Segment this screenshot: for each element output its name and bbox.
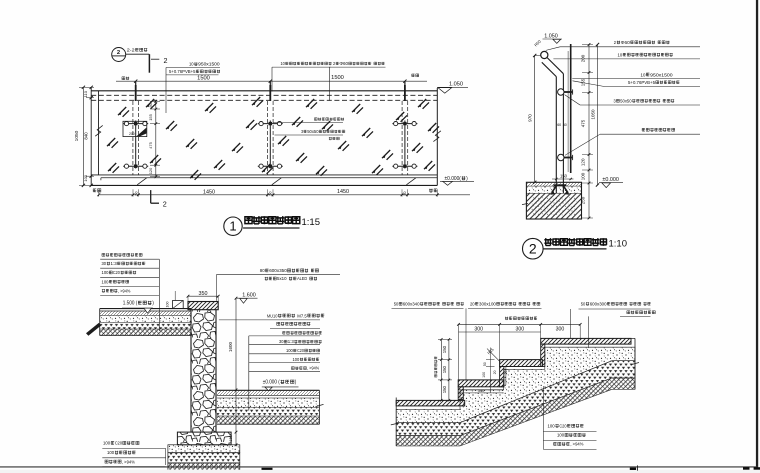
svg-text:1.050: 1.050: [449, 81, 463, 87]
svg-text:600x300: 600x300: [590, 301, 607, 306]
svg-text:2-2: 2-2: [127, 47, 135, 53]
svg-text:30: 30: [102, 261, 107, 266]
svg-text:200: 200: [129, 132, 135, 136]
svg-text:C20: C20: [113, 270, 120, 275]
svg-text:100: 100: [166, 302, 170, 308]
svg-text:100: 100: [581, 172, 586, 180]
svg-text:1:10: 1:10: [609, 239, 628, 250]
svg-text:5x10: 5x10: [277, 276, 287, 281]
svg-text:, >94%: , >94%: [570, 442, 584, 448]
svg-text:600x340: 600x340: [403, 301, 420, 306]
svg-text:50: 50: [403, 192, 407, 196]
svg-text:50: 50: [394, 301, 399, 306]
svg-text:200: 200: [581, 54, 586, 62]
svg-text:80: 80: [260, 268, 265, 274]
svg-text:, >94%: , >94%: [307, 366, 319, 371]
svg-text:100: 100: [83, 174, 88, 181]
svg-text:50: 50: [269, 192, 273, 196]
svg-text:120: 120: [581, 158, 586, 166]
svg-text:300: 300: [474, 327, 483, 333]
svg-text:150: 150: [442, 366, 447, 374]
svg-text:2: 2: [163, 200, 167, 209]
svg-text:1:3: 1:3: [288, 339, 294, 344]
svg-text:970: 970: [528, 114, 533, 122]
svg-text:50: 50: [581, 301, 586, 306]
svg-text:±0.000 (: ±0.000 (: [263, 380, 280, 386]
svg-text:475: 475: [148, 142, 153, 149]
svg-text:475: 475: [581, 119, 586, 127]
svg-text:20: 20: [470, 301, 475, 306]
svg-text:1.600: 1.600: [242, 292, 256, 298]
svg-text:10: 10: [189, 62, 194, 67]
svg-text:100: 100: [557, 433, 564, 439]
svg-text:): ): [152, 301, 154, 307]
svg-text:C20: C20: [559, 423, 566, 429]
svg-text:1.500 (: 1.500 (: [123, 301, 138, 307]
svg-text:120: 120: [148, 167, 153, 174]
svg-text:50x50: 50x50: [307, 129, 319, 134]
svg-text:±0.000: ±0.000: [602, 177, 618, 183]
svg-text:2: 2: [529, 241, 537, 257]
svg-text:10: 10: [281, 61, 286, 66]
svg-text:100: 100: [293, 357, 300, 362]
svg-text:): ): [466, 176, 468, 182]
svg-text:±0.000(: ±0.000(: [445, 176, 462, 182]
svg-text:C20: C20: [297, 348, 304, 353]
svg-text:600x350: 600x350: [269, 268, 287, 274]
svg-text:1600: 1600: [228, 341, 233, 352]
svg-text:30: 30: [279, 339, 284, 344]
svg-text:100: 100: [102, 270, 109, 275]
svg-text:): ): [295, 380, 297, 386]
svg-text:150: 150: [442, 386, 447, 394]
svg-text:Φ60: Φ60: [621, 40, 631, 45]
svg-text:50: 50: [483, 362, 487, 366]
svg-text:50: 50: [135, 192, 139, 196]
svg-text:5+0.76PVB+5: 5+0.76PVB+5: [628, 80, 655, 85]
svg-text:100: 100: [482, 372, 486, 378]
svg-text:2: 2: [614, 40, 617, 45]
svg-text:340: 340: [478, 388, 485, 393]
svg-text:5+0.76PVB+5: 5+0.76PVB+5: [169, 69, 196, 74]
svg-text:1: 1: [229, 219, 236, 234]
svg-text:1050: 1050: [74, 130, 80, 141]
svg-text:20: 20: [493, 370, 497, 374]
svg-text:100: 100: [107, 450, 114, 456]
svg-text:C20: C20: [115, 441, 122, 447]
svg-text:100: 100: [102, 279, 109, 284]
svg-text:10: 10: [618, 52, 623, 57]
svg-text:150: 150: [229, 435, 233, 441]
svg-text:110: 110: [83, 90, 88, 97]
svg-text:2: 2: [164, 56, 168, 65]
svg-text:1:15: 1:15: [302, 217, 321, 228]
svg-text:1500: 1500: [197, 75, 210, 81]
svg-text:1.050: 1.050: [544, 34, 558, 40]
svg-text:20: 20: [504, 370, 508, 374]
svg-text:, >94%: , >94%: [122, 459, 136, 465]
svg-text:840: 840: [83, 132, 88, 140]
svg-text:150: 150: [442, 345, 447, 353]
svg-text:40: 40: [563, 123, 567, 127]
svg-text:60: 60: [557, 123, 561, 127]
svg-text:3: 3: [614, 98, 617, 103]
svg-text:1050: 1050: [591, 109, 596, 120]
svg-text:250: 250: [581, 196, 586, 204]
svg-text:MU10: MU10: [267, 313, 278, 319]
svg-text:, >94%: , >94%: [118, 288, 130, 293]
svg-text:100: 100: [548, 423, 555, 429]
svg-text:Φ60: Φ60: [339, 61, 348, 66]
svg-text:1500: 1500: [331, 75, 344, 81]
svg-text:50x50: 50x50: [620, 98, 632, 103]
svg-text:150: 150: [560, 174, 568, 179]
svg-text:ALED: ALED: [297, 276, 307, 281]
svg-text:1:3: 1:3: [111, 261, 118, 266]
svg-text:M7.5: M7.5: [297, 313, 307, 319]
svg-text:300: 300: [556, 327, 565, 333]
svg-text:1450: 1450: [203, 189, 215, 195]
svg-text:950x1500: 950x1500: [650, 72, 673, 78]
svg-text:350: 350: [199, 291, 208, 297]
svg-text:155: 155: [148, 114, 153, 121]
svg-text:300: 300: [515, 327, 524, 333]
svg-text:300x100: 300x100: [479, 301, 496, 306]
svg-text:100: 100: [103, 441, 110, 447]
svg-text:1450: 1450: [337, 189, 349, 195]
svg-text:100: 100: [286, 348, 293, 353]
svg-text:2: 2: [117, 50, 120, 56]
svg-text:950x1500: 950x1500: [198, 62, 220, 67]
svg-text:10: 10: [641, 72, 646, 78]
